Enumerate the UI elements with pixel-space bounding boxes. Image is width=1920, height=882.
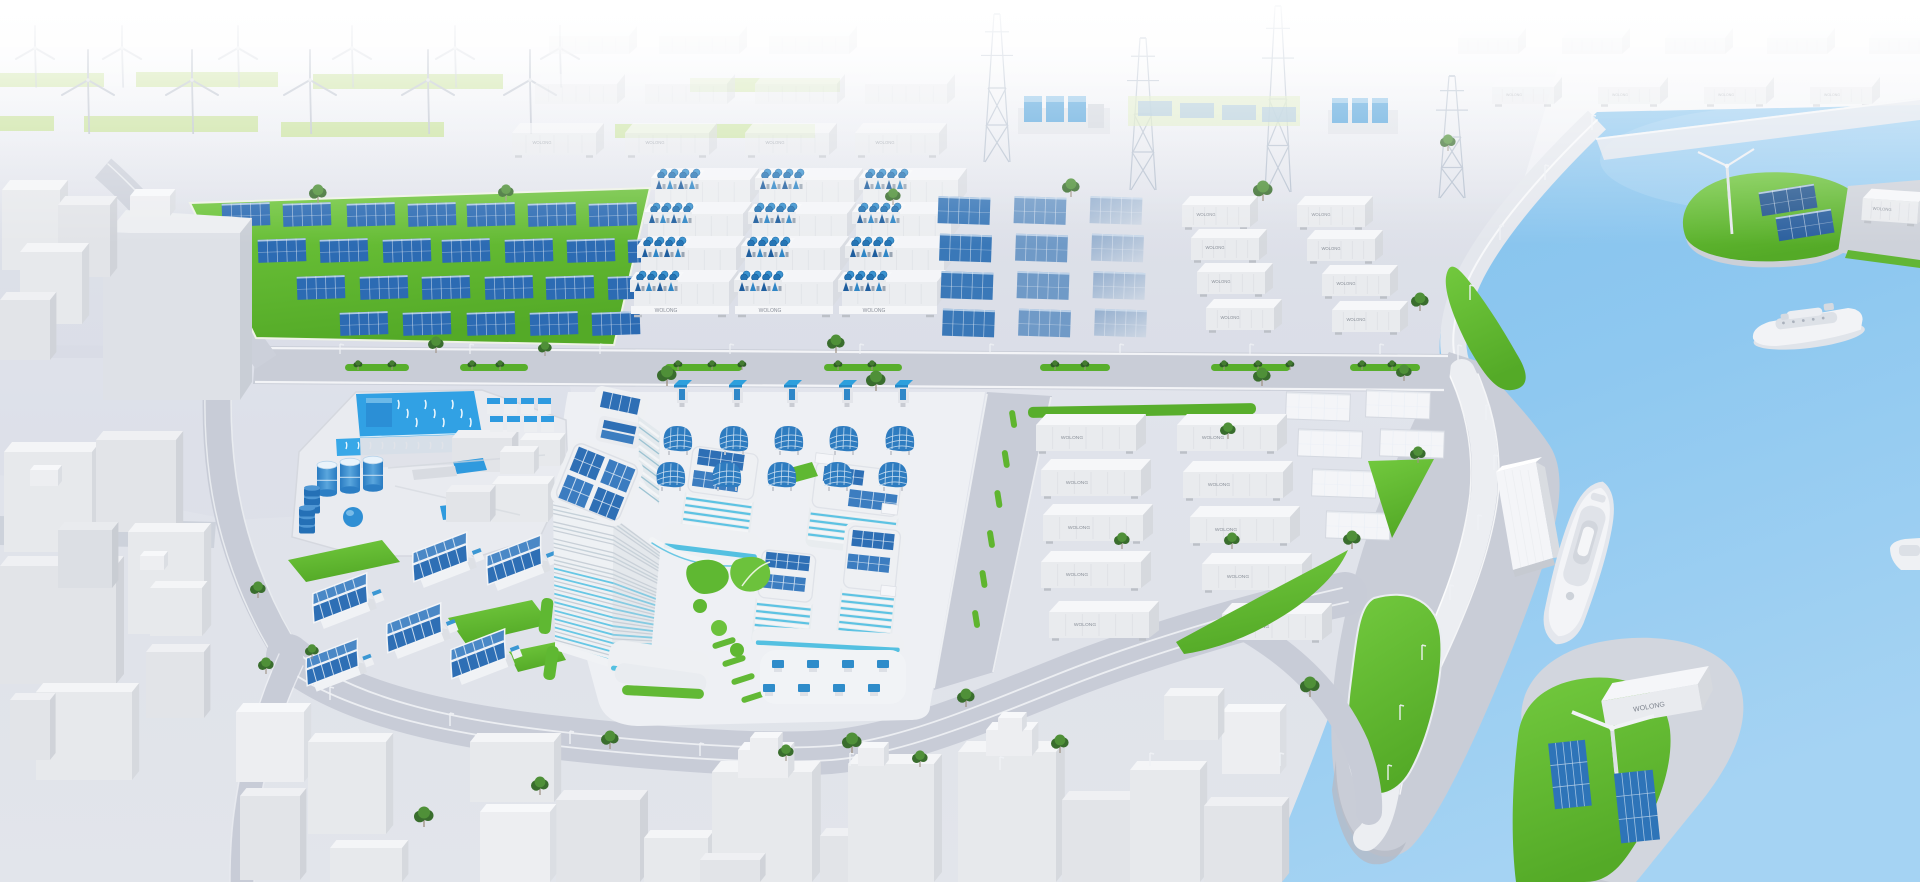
svg-text:WOLONG: WOLONG (1215, 527, 1237, 533)
svg-text:WOLONG: WOLONG (1205, 245, 1224, 250)
svg-text:WOLONG: WOLONG (1220, 315, 1239, 320)
svg-text:WOLONG: WOLONG (655, 308, 678, 314)
svg-text:WOLONG: WOLONG (759, 308, 782, 314)
svg-text:WOLONG: WOLONG (1068, 525, 1090, 531)
svg-text:WOLONG: WOLONG (1202, 435, 1224, 441)
svg-text:WOLONG: WOLONG (1227, 574, 1249, 580)
svg-text:WOLONG: WOLONG (1061, 435, 1083, 441)
svg-text:WOLONG: WOLONG (1211, 279, 1230, 284)
svg-text:WOLONG: WOLONG (1208, 482, 1230, 488)
svg-text:WOLONG: WOLONG (1074, 622, 1096, 628)
svg-text:WOLONG: WOLONG (1066, 480, 1088, 486)
svg-text:WOLONG: WOLONG (1321, 246, 1340, 251)
svg-text:WOLONG: WOLONG (1346, 317, 1365, 322)
svg-text:WOLONG: WOLONG (863, 308, 886, 314)
svg-text:WOLONG: WOLONG (1066, 572, 1088, 578)
svg-text:WOLONG: WOLONG (1336, 281, 1355, 286)
